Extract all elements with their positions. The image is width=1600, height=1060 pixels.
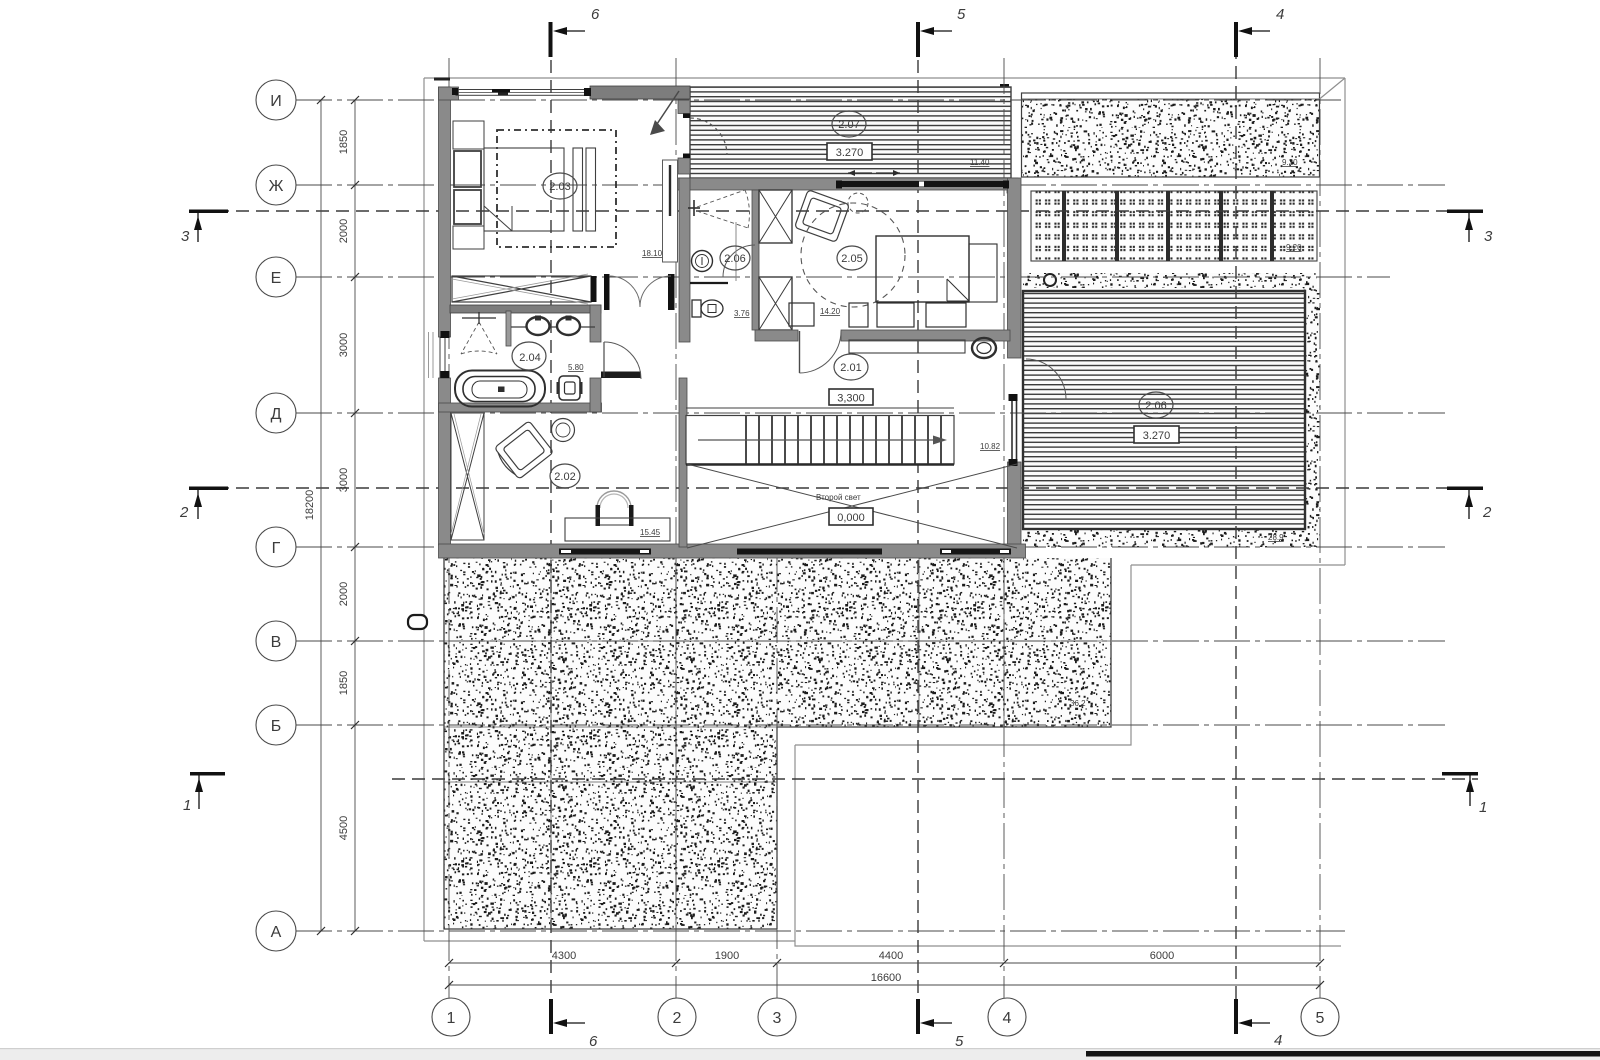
svg-text:10.82: 10.82 [980, 442, 1001, 451]
svg-text:4300: 4300 [552, 950, 576, 962]
svg-text:2: 2 [673, 1010, 682, 1027]
svg-text:1: 1 [447, 1010, 456, 1027]
svg-text:1: 1 [183, 797, 191, 814]
svg-text:1850: 1850 [338, 130, 350, 154]
svg-text:14.20: 14.20 [820, 307, 841, 316]
svg-text:Ж: Ж [269, 178, 284, 195]
svg-text:2.06: 2.06 [1145, 400, 1166, 412]
svg-text:0,000: 0,000 [837, 512, 865, 524]
svg-text:2000: 2000 [338, 582, 350, 606]
svg-text:3000: 3000 [338, 333, 350, 357]
svg-text:5.80: 5.80 [568, 363, 584, 372]
svg-text:11.40: 11.40 [970, 158, 990, 167]
svg-text:И: И [270, 93, 282, 110]
svg-text:2.06: 2.06 [724, 253, 745, 265]
svg-text:Е: Е [271, 270, 282, 287]
svg-text:2.04: 2.04 [519, 352, 540, 364]
svg-text:4: 4 [1274, 1032, 1282, 1049]
svg-text:2: 2 [179, 504, 189, 521]
svg-text:5: 5 [957, 6, 966, 23]
svg-text:2.02: 2.02 [554, 471, 575, 483]
svg-text:6: 6 [589, 1033, 598, 1050]
svg-text:18200: 18200 [304, 490, 316, 521]
svg-text:18.10: 18.10 [642, 249, 663, 258]
svg-text:6: 6 [591, 6, 600, 23]
svg-text:2.03: 2.03 [549, 181, 570, 193]
svg-text:5: 5 [1316, 1010, 1325, 1027]
svg-text:Второй свет: Второй свет [816, 493, 861, 502]
svg-text:9.20: 9.20 [1282, 158, 1298, 167]
svg-text:16600: 16600 [871, 972, 902, 984]
svg-text:1: 1 [1479, 799, 1487, 816]
svg-text:9.20: 9.20 [1286, 243, 1302, 252]
svg-text:4: 4 [1276, 6, 1284, 23]
svg-text:3: 3 [1484, 228, 1493, 245]
svg-text:15.45: 15.45 [640, 528, 661, 537]
svg-text:3.270: 3.270 [1143, 430, 1171, 442]
svg-text:3,300: 3,300 [837, 393, 865, 405]
svg-text:Д: Д [271, 406, 282, 423]
svg-text:2.01: 2.01 [840, 362, 861, 374]
svg-text:В: В [271, 634, 282, 651]
svg-text:4400: 4400 [879, 950, 903, 962]
svg-text:3.76: 3.76 [734, 309, 750, 318]
svg-text:3000: 3000 [338, 468, 350, 492]
svg-text:2000: 2000 [338, 219, 350, 243]
svg-text:6000: 6000 [1150, 950, 1174, 962]
svg-text:А: А [271, 924, 282, 941]
svg-text:36.2: 36.2 [1070, 699, 1086, 708]
svg-text:1850: 1850 [338, 671, 350, 695]
svg-text:28.9: 28.9 [1268, 533, 1284, 542]
svg-text:2.07: 2.07 [838, 119, 859, 131]
svg-text:4: 4 [1003, 1010, 1012, 1027]
svg-text:Б: Б [271, 718, 282, 735]
svg-text:4500: 4500 [338, 816, 350, 840]
svg-text:1900: 1900 [715, 950, 739, 962]
svg-text:5: 5 [955, 1033, 964, 1050]
svg-text:3: 3 [773, 1010, 782, 1027]
svg-text:2.05: 2.05 [841, 253, 862, 265]
svg-text:2: 2 [1482, 504, 1492, 521]
svg-text:Г: Г [272, 540, 281, 557]
svg-text:3: 3 [181, 228, 190, 245]
svg-text:3.270: 3.270 [836, 147, 864, 159]
